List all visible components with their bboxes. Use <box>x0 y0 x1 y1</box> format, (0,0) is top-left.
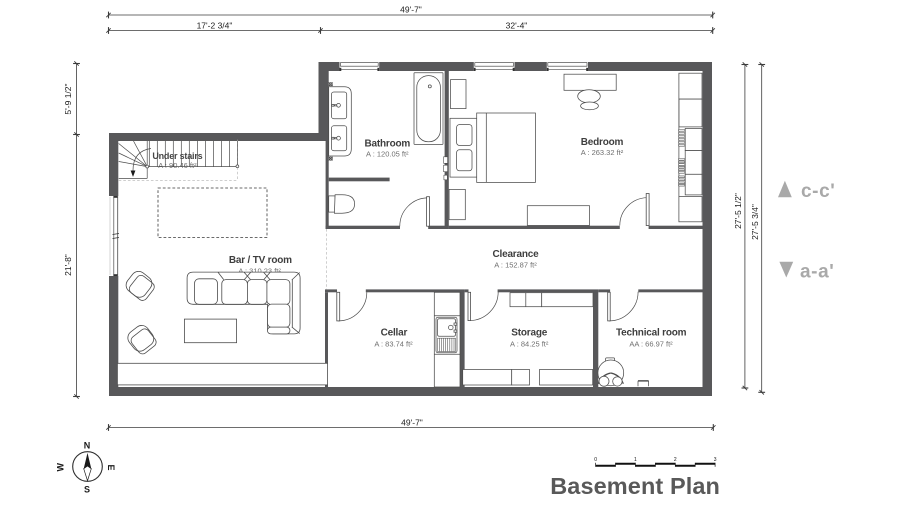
svg-text:Under stairs: Under stairs <box>152 151 202 161</box>
svg-text:Bedroom: Bedroom <box>581 137 624 148</box>
svg-text:E: E <box>106 464 116 470</box>
svg-text:5'-9 1/2": 5'-9 1/2" <box>63 83 73 114</box>
svg-text:Cellar: Cellar <box>381 328 408 339</box>
svg-text:A : 263.32 ft²: A : 263.32 ft² <box>581 148 624 157</box>
svg-text:21'-8": 21'-8" <box>63 254 73 276</box>
svg-text:Bar / TV room: Bar / TV room <box>229 255 292 266</box>
svg-text:27'-5 3/4": 27'-5 3/4" <box>750 204 760 240</box>
svg-text:3: 3 <box>714 457 717 463</box>
svg-text:N: N <box>84 441 91 451</box>
svg-text:49'-7": 49'-7" <box>400 5 422 15</box>
svg-text:S: S <box>84 485 90 495</box>
svg-text:A : 120.05 ft²: A : 120.05 ft² <box>366 150 409 159</box>
svg-text:Clearance: Clearance <box>492 249 539 260</box>
svg-text:17'-2 3/4": 17'-2 3/4" <box>197 20 233 30</box>
svg-text:A : 83.74 ft²: A : 83.74 ft² <box>374 340 413 349</box>
svg-text:27'-5 1/2": 27'-5 1/2" <box>733 193 743 229</box>
svg-text:a-a': a-a' <box>800 262 834 283</box>
svg-text:0: 0 <box>594 457 597 463</box>
svg-text:A : 90.46 ft²: A : 90.46 ft² <box>158 161 197 170</box>
svg-text:A : 84.25 ft²: A : 84.25 ft² <box>510 340 549 349</box>
svg-text:Bathroom: Bathroom <box>364 139 410 150</box>
svg-text:32'-4": 32'-4" <box>506 20 528 30</box>
svg-text:Technical room: Technical room <box>616 328 687 339</box>
svg-text:49'-7": 49'-7" <box>401 418 423 428</box>
svg-text:c-c': c-c' <box>801 181 835 202</box>
svg-text:Basement Plan: Basement Plan <box>550 473 720 499</box>
svg-text:W: W <box>56 463 66 472</box>
svg-text:1: 1 <box>634 457 637 463</box>
svg-text:A : 152.87 ft²: A : 152.87 ft² <box>494 261 537 270</box>
svg-text:AA : 66.97 ft²: AA : 66.97 ft² <box>629 340 673 349</box>
svg-text:2: 2 <box>674 457 677 463</box>
svg-text:Storage: Storage <box>511 328 547 339</box>
